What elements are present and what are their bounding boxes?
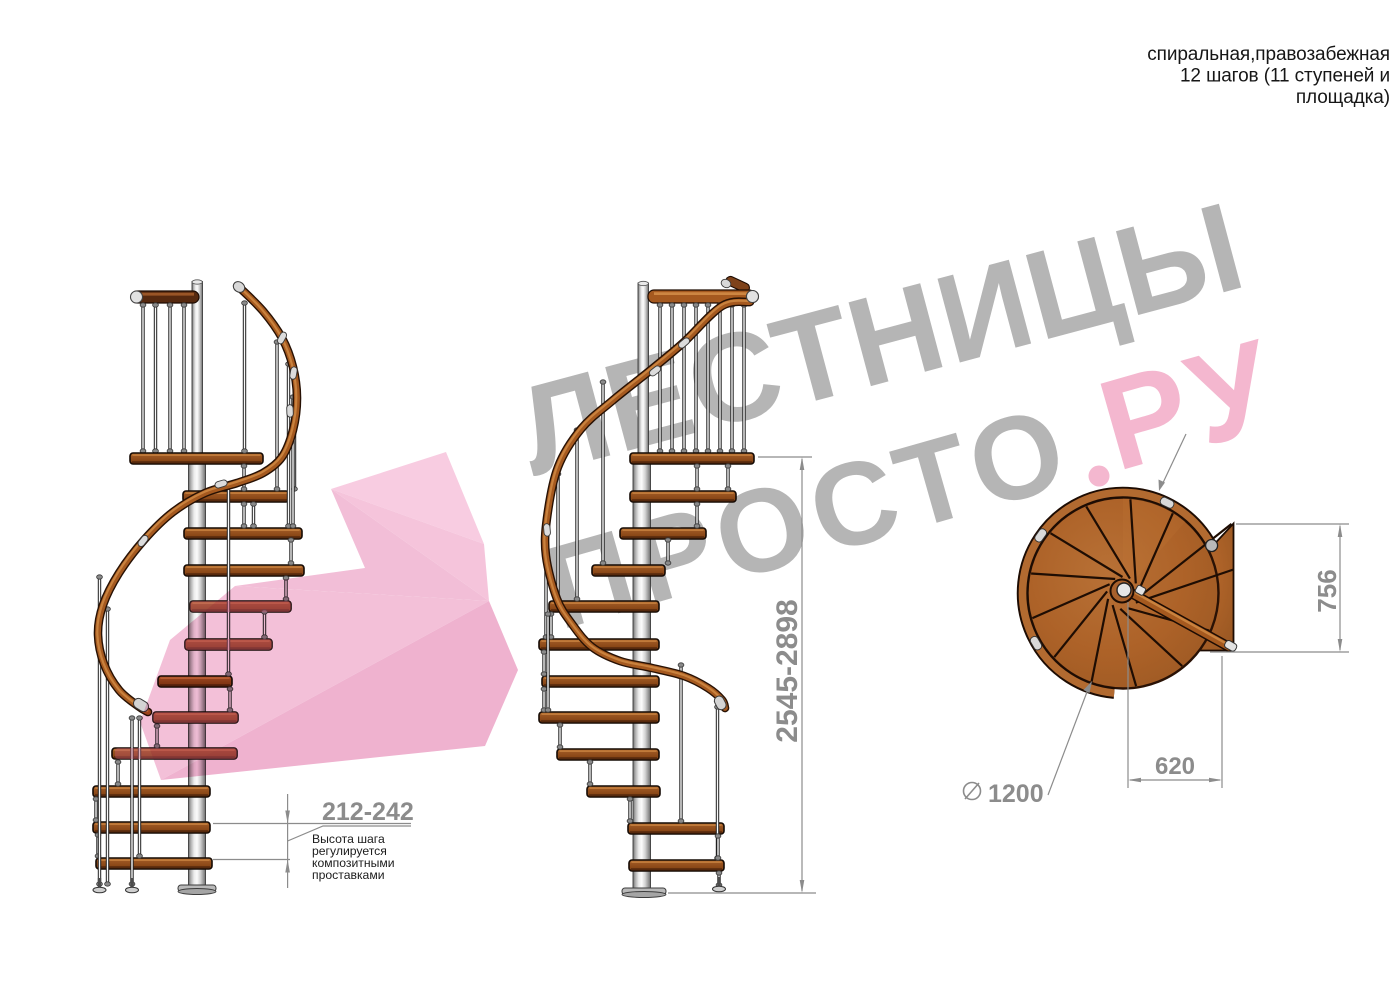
- svg-text:12 шагов (11 ступеней и: 12 шагов (11 ступеней и: [1180, 66, 1390, 87]
- svg-text:Высота шагарегулируетсякомпози: Высота шагарегулируетсякомпозитнымипрост…: [312, 832, 395, 882]
- svg-text:площадка): площадка): [1296, 87, 1390, 108]
- svg-text:212-242: 212-242: [322, 798, 414, 826]
- svg-text:1200: 1200: [988, 780, 1044, 808]
- svg-text:756: 756: [1312, 569, 1342, 612]
- svg-text:620: 620: [1155, 753, 1195, 780]
- svg-text:спиральная,правозабежная: спиральная,правозабежная: [1147, 44, 1390, 65]
- svg-text:2545-2898: 2545-2898: [771, 599, 804, 742]
